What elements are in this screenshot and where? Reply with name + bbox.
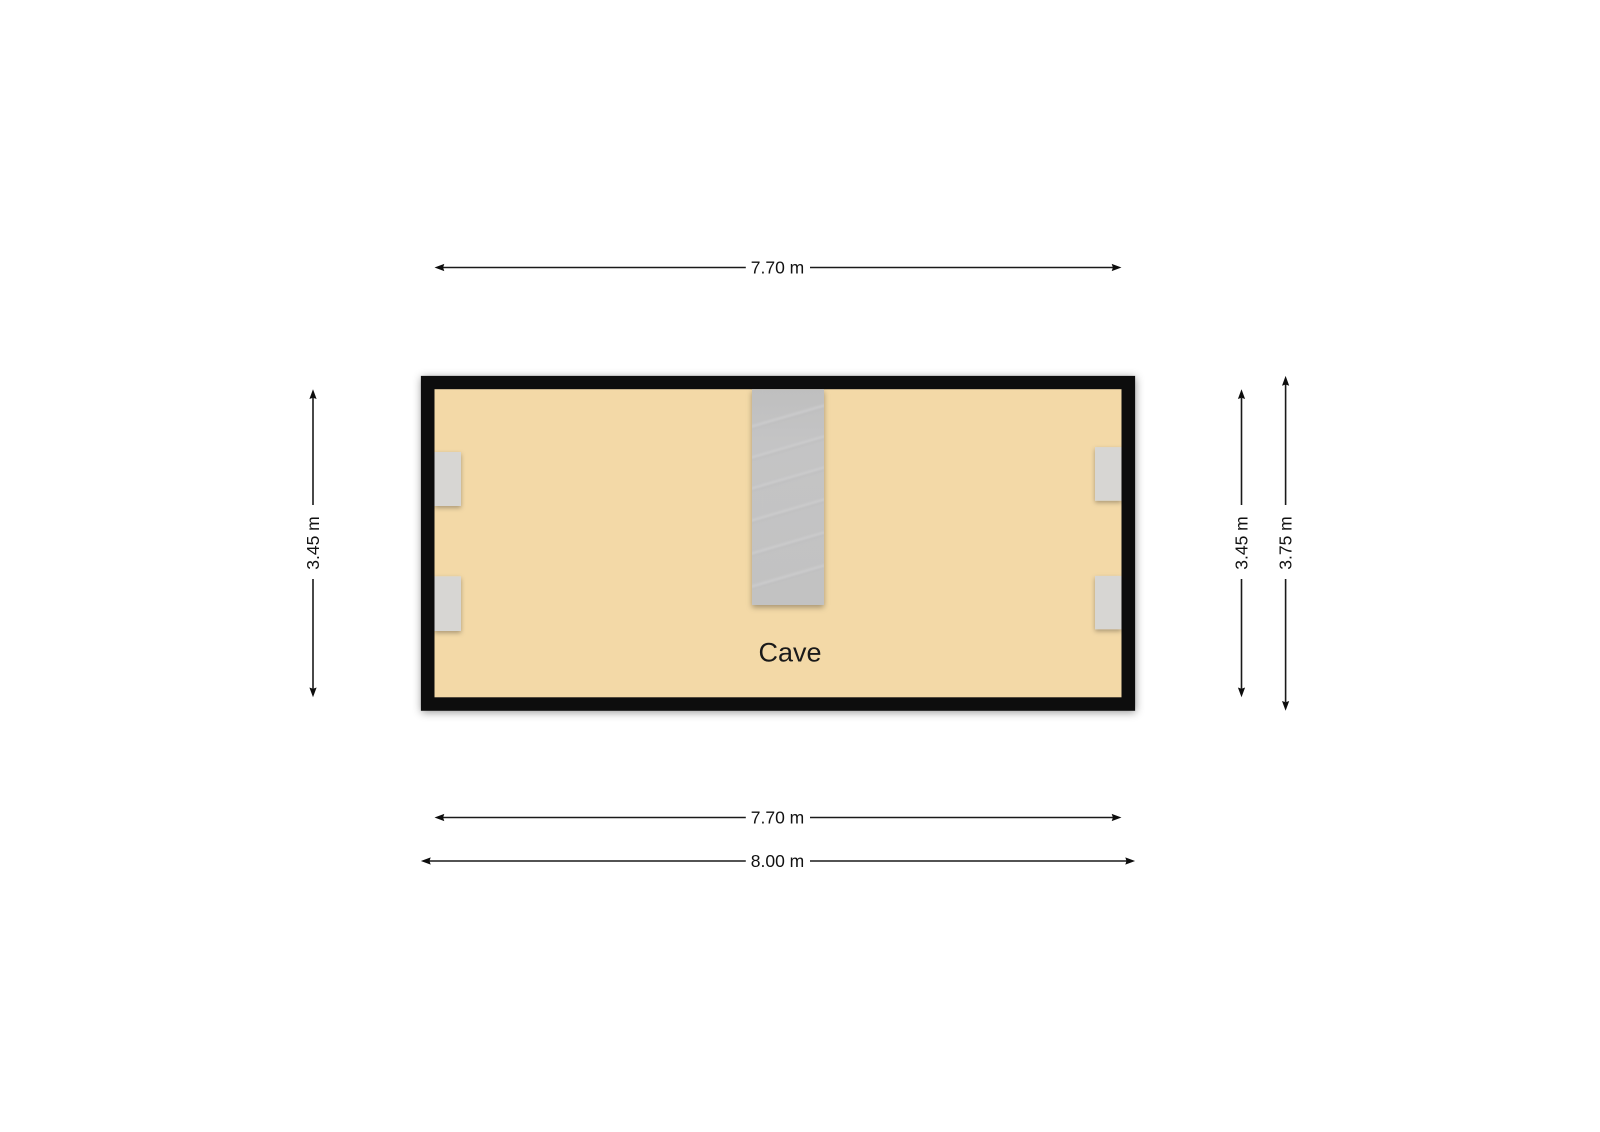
svg-text:8.00 m: 8.00 m bbox=[751, 851, 805, 871]
svg-text:3.45 m: 3.45 m bbox=[303, 516, 323, 570]
svg-text:7.70 m: 7.70 m bbox=[751, 258, 805, 278]
svg-text:3.75 m: 3.75 m bbox=[1276, 516, 1296, 570]
svg-text:7.70 m: 7.70 m bbox=[751, 808, 805, 828]
svg-text:3.45 m: 3.45 m bbox=[1232, 516, 1252, 570]
svg-text:Cave: Cave bbox=[758, 638, 821, 668]
